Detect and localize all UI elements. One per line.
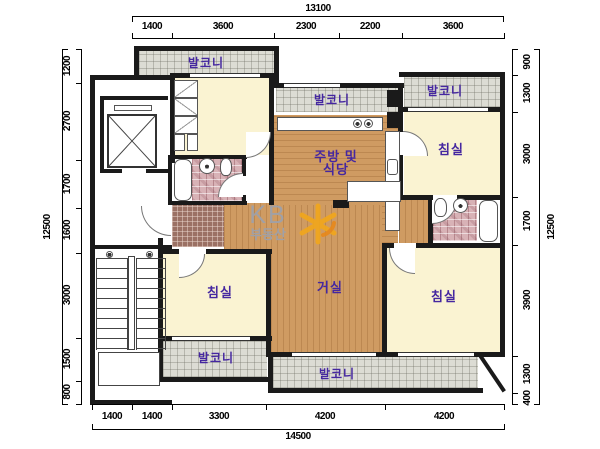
- room-label-living: 거실: [290, 281, 370, 294]
- kitchen-sink-icon: [387, 159, 398, 175]
- dim-right-label: 3000: [522, 137, 534, 171]
- closet-icon: [187, 134, 198, 151]
- room-label-bedroom: 침실: [180, 286, 260, 299]
- room-label-bedroom: 침실: [411, 143, 491, 156]
- dim-right-label: 400: [522, 381, 534, 415]
- dim-bottom-label: 4200: [303, 411, 347, 423]
- wall-segment: [268, 352, 273, 393]
- dim-left-segment-line: [76, 160, 82, 209]
- sink-icon: [199, 158, 215, 174]
- wall-column: [387, 90, 401, 107]
- toilet-icon: [220, 158, 232, 176]
- elevator-car-icon: [107, 114, 157, 168]
- dim-bottom-segment-line: [132, 404, 173, 410]
- dim-right-segment-line: [512, 393, 518, 405]
- dim-bottom-segment-line: [92, 404, 133, 410]
- dim-top-total-label: 13100: [293, 3, 343, 15]
- wall-segment-diagonal: [478, 354, 506, 393]
- dim-bottom-total-label: 14500: [273, 431, 323, 443]
- dim-right-label: 1700: [522, 204, 534, 238]
- dim-top-segment-line: [172, 33, 275, 39]
- dim-left-segment-line: [76, 338, 82, 382]
- window: [398, 352, 474, 357]
- elevator-shaft-wall: [100, 96, 168, 100]
- closet-icon: [174, 134, 185, 151]
- dim-top-segment-line: [132, 33, 173, 39]
- dim-left-label: 800: [62, 375, 74, 409]
- watermark-brand: KB: [240, 202, 296, 228]
- room-label-bedroom: 침실: [404, 290, 484, 303]
- dim-left-label: 1700: [62, 167, 74, 201]
- dim-bottom-label: 1400: [90, 411, 134, 423]
- sink-icon: [453, 198, 468, 213]
- room-label-balcony: 발코니: [292, 94, 372, 107]
- room-label-balcony: 발코니: [297, 368, 377, 381]
- dim-bottom-total-line: [92, 424, 505, 430]
- dim-bottom-segment-line: [385, 404, 505, 410]
- toilet-icon: [434, 198, 447, 217]
- dim-right-label: 900: [522, 45, 534, 79]
- kitchen-label-line2: 식당: [296, 163, 376, 176]
- dim-right-segment-line: [512, 197, 518, 246]
- dim-right-segment-line: [512, 112, 518, 198]
- stair-post-icon: [106, 251, 113, 258]
- dim-left-segment-line: [76, 208, 82, 254]
- dim-right-total-label: 12500: [546, 207, 558, 247]
- stair-post-icon: [146, 251, 153, 258]
- bathtub-icon: [479, 200, 498, 242]
- wall-segment: [134, 46, 279, 51]
- wall-segment: [268, 388, 483, 393]
- dim-top-segment-line: [339, 33, 403, 39]
- dim-right-label: 3900: [522, 283, 534, 317]
- dim-top-label: 3600: [431, 21, 475, 33]
- entry-vestibule: [172, 205, 224, 247]
- dim-top-label: 2300: [284, 21, 328, 33]
- dim-bottom-segment-line: [266, 404, 386, 410]
- window: [292, 352, 376, 357]
- dim-left-segment-line: [76, 381, 82, 405]
- elevator-x-icon: [109, 116, 155, 166]
- wall-segment: [274, 46, 279, 87]
- dim-left-label: 2700: [62, 104, 74, 138]
- elevator-shaft-wall: [100, 96, 104, 173]
- dim-right-label: 1300: [522, 76, 534, 110]
- wall-segment: [168, 155, 172, 205]
- dim-left-label: 1500: [62, 342, 74, 376]
- room-label-balcony: 발코니: [176, 352, 256, 365]
- wall-segment: [382, 243, 387, 357]
- dim-top-label: 2200: [348, 21, 392, 33]
- staircase-landing: [98, 352, 160, 386]
- dim-right-segment-line: [512, 356, 518, 394]
- dim-bottom-label: 3300: [197, 411, 241, 423]
- dim-top-segment-line: [274, 33, 340, 39]
- staircase-rail: [128, 256, 135, 350]
- dim-top-segment-line: [402, 33, 505, 39]
- dim-right-total-line: [534, 49, 540, 405]
- dim-right-segment-line: [512, 49, 518, 76]
- bathtub-icon: [174, 159, 192, 201]
- dim-bottom-label: 1400: [130, 411, 174, 423]
- room-label-balcony: 발코니: [166, 57, 246, 70]
- room-label-kitchen: 주방 및 식당: [296, 150, 376, 176]
- wall-segment: [399, 72, 505, 77]
- window: [190, 73, 260, 78]
- dim-top-label: 3600: [201, 21, 245, 33]
- wall-segment: [158, 377, 273, 382]
- hall-nook-floor: [399, 199, 428, 243]
- wall-segment: [90, 75, 95, 405]
- floor-plan: 발코니 발코니 발코니 발코니 발코니 침실 침실 침실 거실 주방 및 식당 …: [0, 0, 600, 449]
- wall-segment: [500, 72, 505, 357]
- watermark-subtext: 부동산: [240, 228, 296, 242]
- dim-left-label: 1200: [62, 49, 74, 83]
- window: [172, 336, 250, 341]
- wall-segment: [90, 75, 172, 80]
- wardrobe-icon: [174, 116, 198, 134]
- stove-burner-icon: [364, 119, 373, 128]
- dim-bottom-segment-line: [172, 404, 267, 410]
- dim-left-segment-line: [76, 49, 82, 84]
- wall-segment: [90, 245, 172, 249]
- window: [284, 83, 340, 88]
- wall-segment: [416, 243, 505, 248]
- dim-right-segment-line: [512, 75, 518, 113]
- dim-bottom-label: 4200: [422, 411, 466, 423]
- dim-left-label: 3000: [62, 278, 74, 312]
- wardrobe-icon: [174, 98, 198, 116]
- wall-segment: [158, 249, 272, 254]
- dining-counter: [347, 181, 401, 202]
- stove-burner-icon: [353, 119, 362, 128]
- wall-segment: [168, 201, 247, 205]
- wardrobe-icon: [174, 80, 198, 98]
- elevator-vent: [114, 105, 152, 111]
- dim-left-segment-line: [76, 253, 82, 339]
- dim-top-label: 1400: [130, 21, 174, 33]
- dim-right-segment-line: [512, 245, 518, 357]
- dim-left-segment-line: [76, 83, 82, 161]
- staircase-flight-right: [136, 258, 166, 350]
- dim-left-label: 1600: [62, 213, 74, 247]
- room-label-balcony: 발코니: [405, 85, 485, 98]
- staircase-flight-left: [96, 258, 128, 350]
- wall-column: [387, 112, 401, 128]
- dim-left-total-label: 12500: [42, 207, 54, 247]
- window: [408, 107, 488, 112]
- kb-star-icon: [296, 202, 342, 248]
